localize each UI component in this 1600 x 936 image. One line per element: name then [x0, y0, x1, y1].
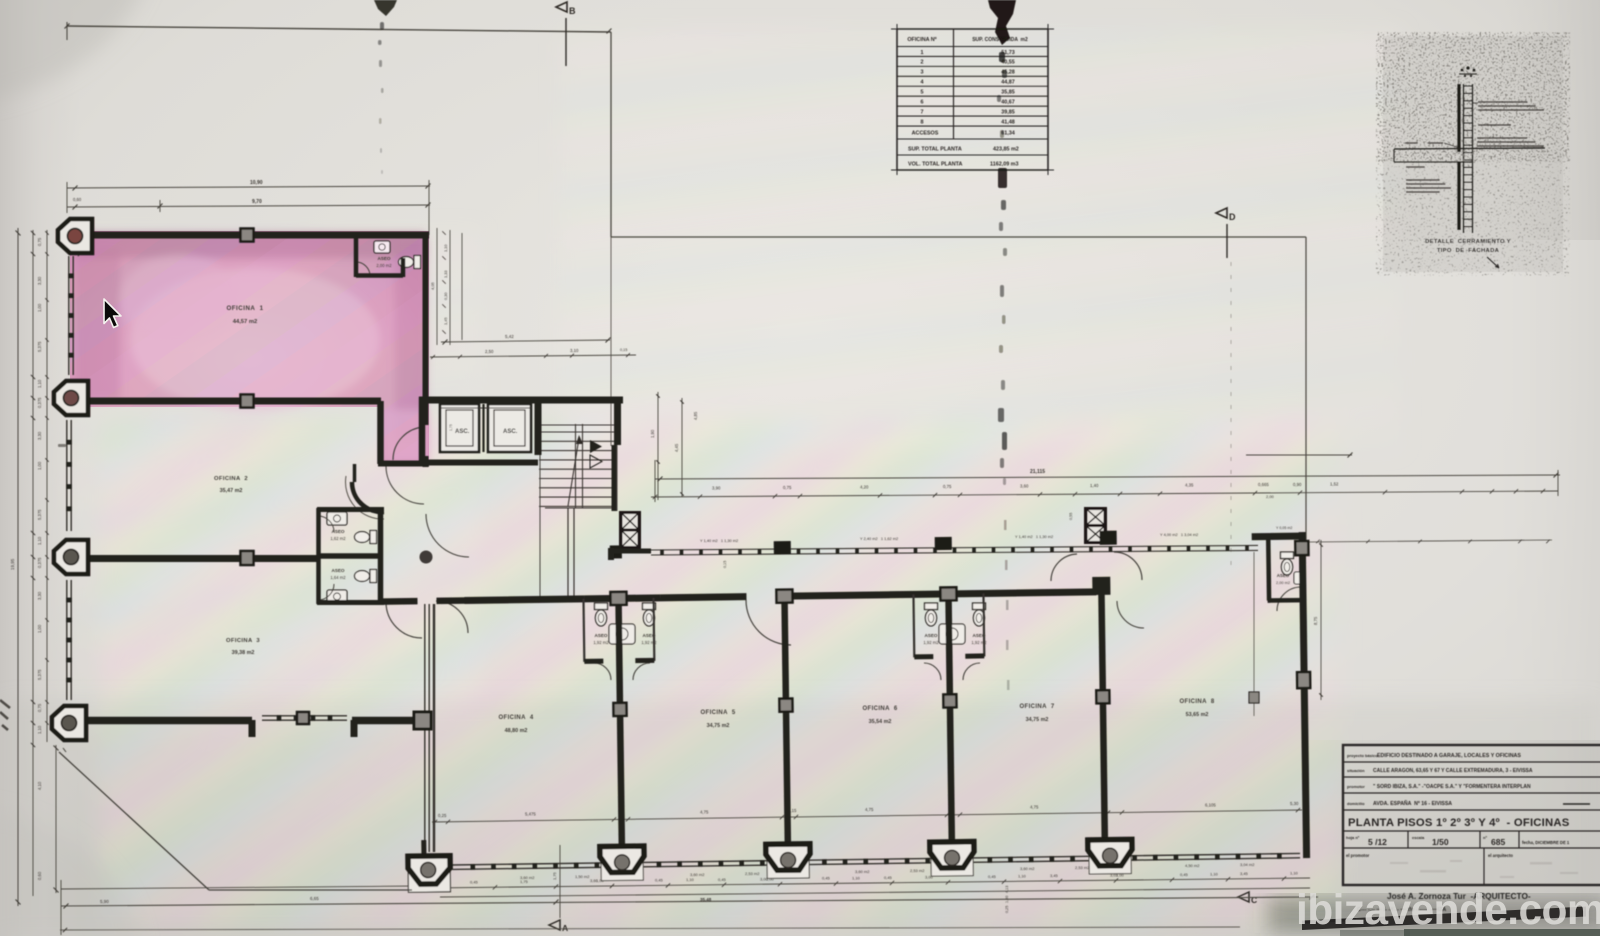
svg-text:0,375: 0,375 [37, 557, 42, 568]
svg-text:OFICINA 3: OFICINA 3 [226, 638, 260, 644]
svg-text:19,95: 19,95 [10, 558, 15, 570]
svg-text:C: C [1251, 895, 1257, 905]
svg-text:Y 4,00 m2 1 3,04 m2: Y 4,00 m2 1 3,04 m2 [1160, 532, 1198, 537]
svg-text:4,45: 4,45 [674, 443, 679, 452]
svg-text:3,60: 3,60 [1020, 484, 1029, 489]
svg-text:35,48: 35,48 [700, 897, 712, 902]
svg-text:2,53 m2: 2,53 m2 [745, 871, 760, 876]
svg-text:1,75: 1,75 [449, 424, 453, 431]
svg-text:hoja nº: hoja nº [1346, 835, 1360, 840]
svg-text:3,10: 3,10 [570, 348, 579, 353]
svg-text:4,05: 4,05 [430, 281, 435, 290]
svg-text:proyecto básico: proyecto básico [1347, 753, 1378, 758]
svg-text:8,75: 8,75 [1313, 616, 1318, 625]
svg-text:ASEO: ASEO [331, 568, 344, 573]
svg-text:1,92 m2: 1,92 m2 [641, 640, 657, 645]
svg-text:Y 0,05 m2: Y 0,05 m2 [1276, 526, 1292, 530]
svg-text:4,75: 4,75 [1030, 805, 1039, 810]
svg-text:OFICINA 6: OFICINA 6 [862, 706, 897, 712]
svg-text:4,50 m2: 4,50 m2 [1185, 863, 1200, 868]
svg-text:4: 4 [921, 80, 924, 86]
svg-text:5,375: 5,375 [37, 341, 42, 352]
svg-text:3,60 m2: 3,60 m2 [520, 875, 535, 880]
svg-text:4,75: 4,75 [700, 809, 709, 814]
svg-text:3,90: 3,90 [712, 486, 721, 491]
svg-text:5: 5 [921, 90, 924, 96]
svg-text:OFICINA 2: OFICINA 2 [214, 476, 248, 482]
svg-text:1,10: 1,10 [37, 725, 42, 734]
svg-text:685: 685 [1491, 837, 1505, 847]
svg-text:1,00: 1,00 [37, 303, 42, 312]
svg-text:3,45: 3,45 [1240, 871, 1249, 876]
svg-text:3,45: 3,45 [1050, 873, 1059, 878]
svg-text:4,85: 4,85 [693, 411, 698, 420]
svg-text:0,15: 0,15 [620, 348, 627, 352]
svg-text:fecha, DICIEMBRE DE 1: fecha, DICIEMBRE DE 1 [1522, 840, 1570, 845]
svg-text:3: 3 [921, 70, 924, 76]
svg-text:3,30: 3,30 [37, 276, 42, 285]
svg-text:5,90: 5,90 [100, 899, 109, 904]
svg-text:escala: escala [1412, 835, 1425, 840]
svg-text:1,75: 1,75 [552, 871, 557, 880]
svg-text:0,75: 0,75 [943, 484, 952, 489]
svg-text:ASEO: ASEO [377, 256, 390, 261]
svg-text:3,04 m2: 3,04 m2 [1240, 862, 1255, 867]
svg-text:2,00 m2: 2,00 m2 [376, 263, 392, 268]
svg-text:1,90: 1,90 [650, 429, 655, 438]
svg-text:situación: situación [1347, 768, 1365, 773]
svg-text:21,115: 21,115 [1030, 469, 1045, 475]
svg-text:48,80 m2: 48,80 m2 [505, 728, 528, 734]
svg-text:OFICINA 8: OFICINA 8 [1179, 699, 1214, 705]
svg-text:ASEO: ASEO [331, 529, 344, 534]
svg-text:2,00: 2,00 [1266, 494, 1275, 499]
svg-text:OFICINA Nº: OFICINA Nº [907, 37, 936, 43]
svg-text:1,52: 1,52 [1330, 482, 1339, 487]
svg-text:0,60: 0,60 [37, 871, 42, 880]
svg-text:0,75: 0,75 [37, 237, 42, 246]
svg-text:7: 7 [921, 109, 924, 115]
svg-text:DETALLE CERRAMIENTO Y: DETALLE CERRAMIENTO Y [1425, 239, 1511, 245]
svg-text:EDIFICIO DESTINADO A GARAJE, L: EDIFICIO DESTINADO A GARAJE, LOCALES Y O… [1377, 753, 1521, 759]
svg-text:35,47 m2: 35,47 m2 [220, 488, 243, 494]
svg-text:ASEO: ASEO [924, 633, 937, 638]
svg-text:4,75: 4,75 [865, 807, 874, 812]
svg-text:2,00 m2: 2,00 m2 [1276, 580, 1290, 585]
svg-text:ibizavende.com: ibizavende.com [1296, 887, 1600, 934]
svg-text:0,375: 0,375 [37, 397, 42, 408]
svg-text:0,45: 0,45 [988, 874, 997, 879]
svg-text:A: A [562, 923, 568, 933]
svg-text:nº: nº [1483, 835, 1487, 840]
svg-text:SUP. TOTAL PLANTA: SUP. TOTAL PLANTA [908, 147, 962, 153]
svg-text:ASEO: ASEO [1277, 573, 1290, 578]
svg-text:Y 1,40 m2 1 1,30 m2: Y 1,40 m2 1 1,30 m2 [1015, 534, 1053, 539]
svg-text:53,65 m2: 53,65 m2 [1186, 712, 1209, 718]
svg-text:0,60: 0,60 [73, 197, 82, 202]
svg-text:OFICINA 1: OFICINA 1 [226, 305, 263, 312]
svg-text:4,10: 4,10 [37, 781, 42, 790]
svg-text:1,00: 1,00 [37, 624, 42, 633]
svg-text:1: 1 [921, 50, 924, 56]
svg-text:ACCESOS: ACCESOS [912, 131, 939, 137]
svg-text:0,15: 0,15 [723, 561, 727, 568]
svg-text:0,45: 0,45 [1180, 872, 1189, 877]
svg-text:35,85: 35,85 [1001, 90, 1015, 96]
svg-text:B: B [569, 6, 576, 16]
svg-text:" SORD IBIZA, S.A." -"OACPE S.: " SORD IBIZA, S.A." -"OACPE S.A." Y "FOR… [1373, 784, 1531, 790]
svg-text:5,42: 5,42 [505, 334, 514, 339]
svg-text:423,85 m2: 423,85 m2 [993, 147, 1019, 153]
svg-text:AVDA. ESPAÑA Nº 16 - EIVISSA: AVDA. ESPAÑA Nº 16 - EIVISSA [1373, 800, 1452, 807]
svg-text:1,10: 1,10 [1018, 874, 1027, 879]
svg-text:8: 8 [921, 119, 924, 125]
svg-text:4,35: 4,35 [1185, 482, 1194, 487]
svg-text:1,92 m2: 1,92 m2 [593, 640, 609, 645]
svg-text:3,30: 3,30 [37, 591, 42, 600]
svg-text:0,25: 0,25 [438, 813, 447, 818]
svg-text:1,64 m2: 1,64 m2 [330, 575, 346, 580]
svg-text:ASEO: ASEO [642, 633, 655, 638]
svg-text:5,375: 5,375 [37, 509, 42, 520]
svg-text:1,10: 1,10 [1210, 871, 1219, 876]
svg-text:0,45: 0,45 [822, 876, 831, 881]
svg-text:1,10: 1,10 [443, 244, 448, 252]
svg-text:ASC.: ASC. [455, 429, 470, 435]
svg-text:0,30: 0,30 [443, 292, 448, 300]
svg-text:6,105: 6,105 [1205, 802, 1216, 807]
svg-text:3,60 m2: 3,60 m2 [855, 869, 870, 874]
svg-text:0,45: 0,45 [655, 878, 664, 883]
svg-text:Y 1,40 m2 1 1,30 m2: Y 1,40 m2 1 1,30 m2 [700, 538, 738, 543]
svg-text:TIPO DE FACHADA: TIPO DE FACHADA [1437, 248, 1500, 254]
svg-text:1,10: 1,10 [37, 379, 42, 388]
svg-text:PLANTA PISOS 1º 2º 3º Y 4º -: PLANTA PISOS 1º 2º 3º Y 4º - OFICINAS [1348, 817, 1570, 829]
svg-text:OFICINA 5: OFICINA 5 [700, 710, 735, 716]
svg-text:1,62 m2: 1,62 m2 [330, 536, 346, 541]
svg-text:1,10: 1,10 [1290, 871, 1299, 876]
svg-text:0,45: 0,45 [470, 880, 479, 885]
svg-text:1,40: 1,40 [1090, 483, 1099, 488]
svg-text:34,75 m2: 34,75 m2 [1026, 717, 1049, 723]
svg-text:ASEO: ASEO [594, 633, 607, 638]
svg-text:1162,09 m3: 1162,09 m3 [990, 162, 1018, 168]
svg-text:44,87: 44,87 [1001, 80, 1015, 86]
svg-text:3,60 m2: 3,60 m2 [1020, 866, 1035, 871]
svg-text:1,10: 1,10 [37, 536, 42, 545]
svg-text:OFICINA 7: OFICINA 7 [1019, 704, 1054, 710]
svg-text:1,50 m2: 1,50 m2 [575, 874, 590, 879]
svg-text:D: D [1229, 212, 1236, 222]
svg-text:0,665: 0,665 [1258, 482, 1269, 487]
svg-text:1,33: 1,33 [443, 270, 448, 278]
svg-text:0,90: 0,90 [1293, 482, 1302, 487]
svg-text:el promotor: el promotor [1346, 853, 1370, 858]
svg-text:2,53 m2: 2,53 m2 [910, 868, 925, 873]
svg-text:0,55: 0,55 [1069, 513, 1073, 520]
svg-text:10,90: 10,90 [250, 180, 263, 186]
svg-text:CALLE ARAGON, 63,65 Y 67 Y CAL: CALLE ARAGON, 63,65 Y 67 Y CALLE EXTREMA… [1373, 768, 1533, 774]
svg-text:1,10: 1,10 [686, 877, 695, 882]
svg-text:35,54 m2: 35,54 m2 [869, 719, 892, 725]
svg-text:domicilio: domicilio [1347, 801, 1365, 806]
svg-text:6,65: 6,65 [310, 896, 319, 901]
svg-text:VOL. TOTAL PLANTA: VOL. TOTAL PLANTA [908, 162, 963, 168]
svg-text:34,75 m2: 34,75 m2 [707, 723, 730, 729]
svg-text:40,67: 40,67 [1001, 100, 1015, 106]
svg-text:4,13: 4,13 [1005, 886, 1009, 893]
svg-text:5,375: 5,375 [37, 669, 42, 680]
svg-text:Y 2,40 m2 1 1,62 m2: Y 2,40 m2 1 1,62 m2 [860, 536, 898, 541]
svg-text:1,10: 1,10 [852, 875, 861, 880]
svg-text:39,85: 39,85 [1001, 109, 1015, 115]
svg-text:1,00: 1,00 [37, 461, 42, 470]
svg-text:2,53 m2: 2,53 m2 [1075, 865, 1090, 870]
svg-text:1,92 m2: 1,92 m2 [923, 640, 939, 645]
svg-text:5 /12: 5 /12 [1368, 837, 1387, 847]
svg-text:9,70: 9,70 [252, 199, 262, 205]
svg-text:ASC.: ASC. [503, 429, 518, 435]
svg-text:3,60 m2: 3,60 m2 [690, 872, 705, 877]
svg-text:5,30: 5,30 [1290, 801, 1299, 806]
svg-text:41,48: 41,48 [1001, 119, 1015, 125]
svg-text:0,75: 0,75 [37, 703, 42, 712]
svg-text:4,20: 4,20 [860, 485, 869, 490]
svg-text:ASEO: ASEO [972, 633, 985, 638]
svg-text:promotor: promotor [1347, 784, 1365, 789]
svg-text:1,00: 1,00 [1005, 896, 1009, 903]
svg-text:0,45: 0,45 [718, 877, 727, 882]
svg-text:el arquitecto: el arquitecto [1488, 853, 1513, 858]
svg-text:39,38 m2: 39,38 m2 [232, 650, 255, 656]
svg-text:6: 6 [921, 100, 924, 106]
svg-text:44,57 m2: 44,57 m2 [233, 319, 258, 325]
svg-text:2,50: 2,50 [485, 349, 494, 354]
svg-text:2: 2 [921, 60, 924, 66]
svg-text:0,45: 0,45 [884, 875, 893, 880]
svg-text:0,25: 0,25 [1005, 906, 1009, 913]
svg-text:1,45: 1,45 [443, 317, 448, 325]
svg-text:OFICINA 4: OFICINA 4 [498, 715, 533, 721]
svg-text:0,75: 0,75 [783, 485, 792, 490]
svg-text:1/50: 1/50 [1432, 837, 1449, 847]
svg-text:1,92 m2: 1,92 m2 [971, 640, 987, 645]
svg-text:3,30: 3,30 [37, 431, 42, 440]
svg-text:5,475: 5,475 [525, 812, 536, 817]
